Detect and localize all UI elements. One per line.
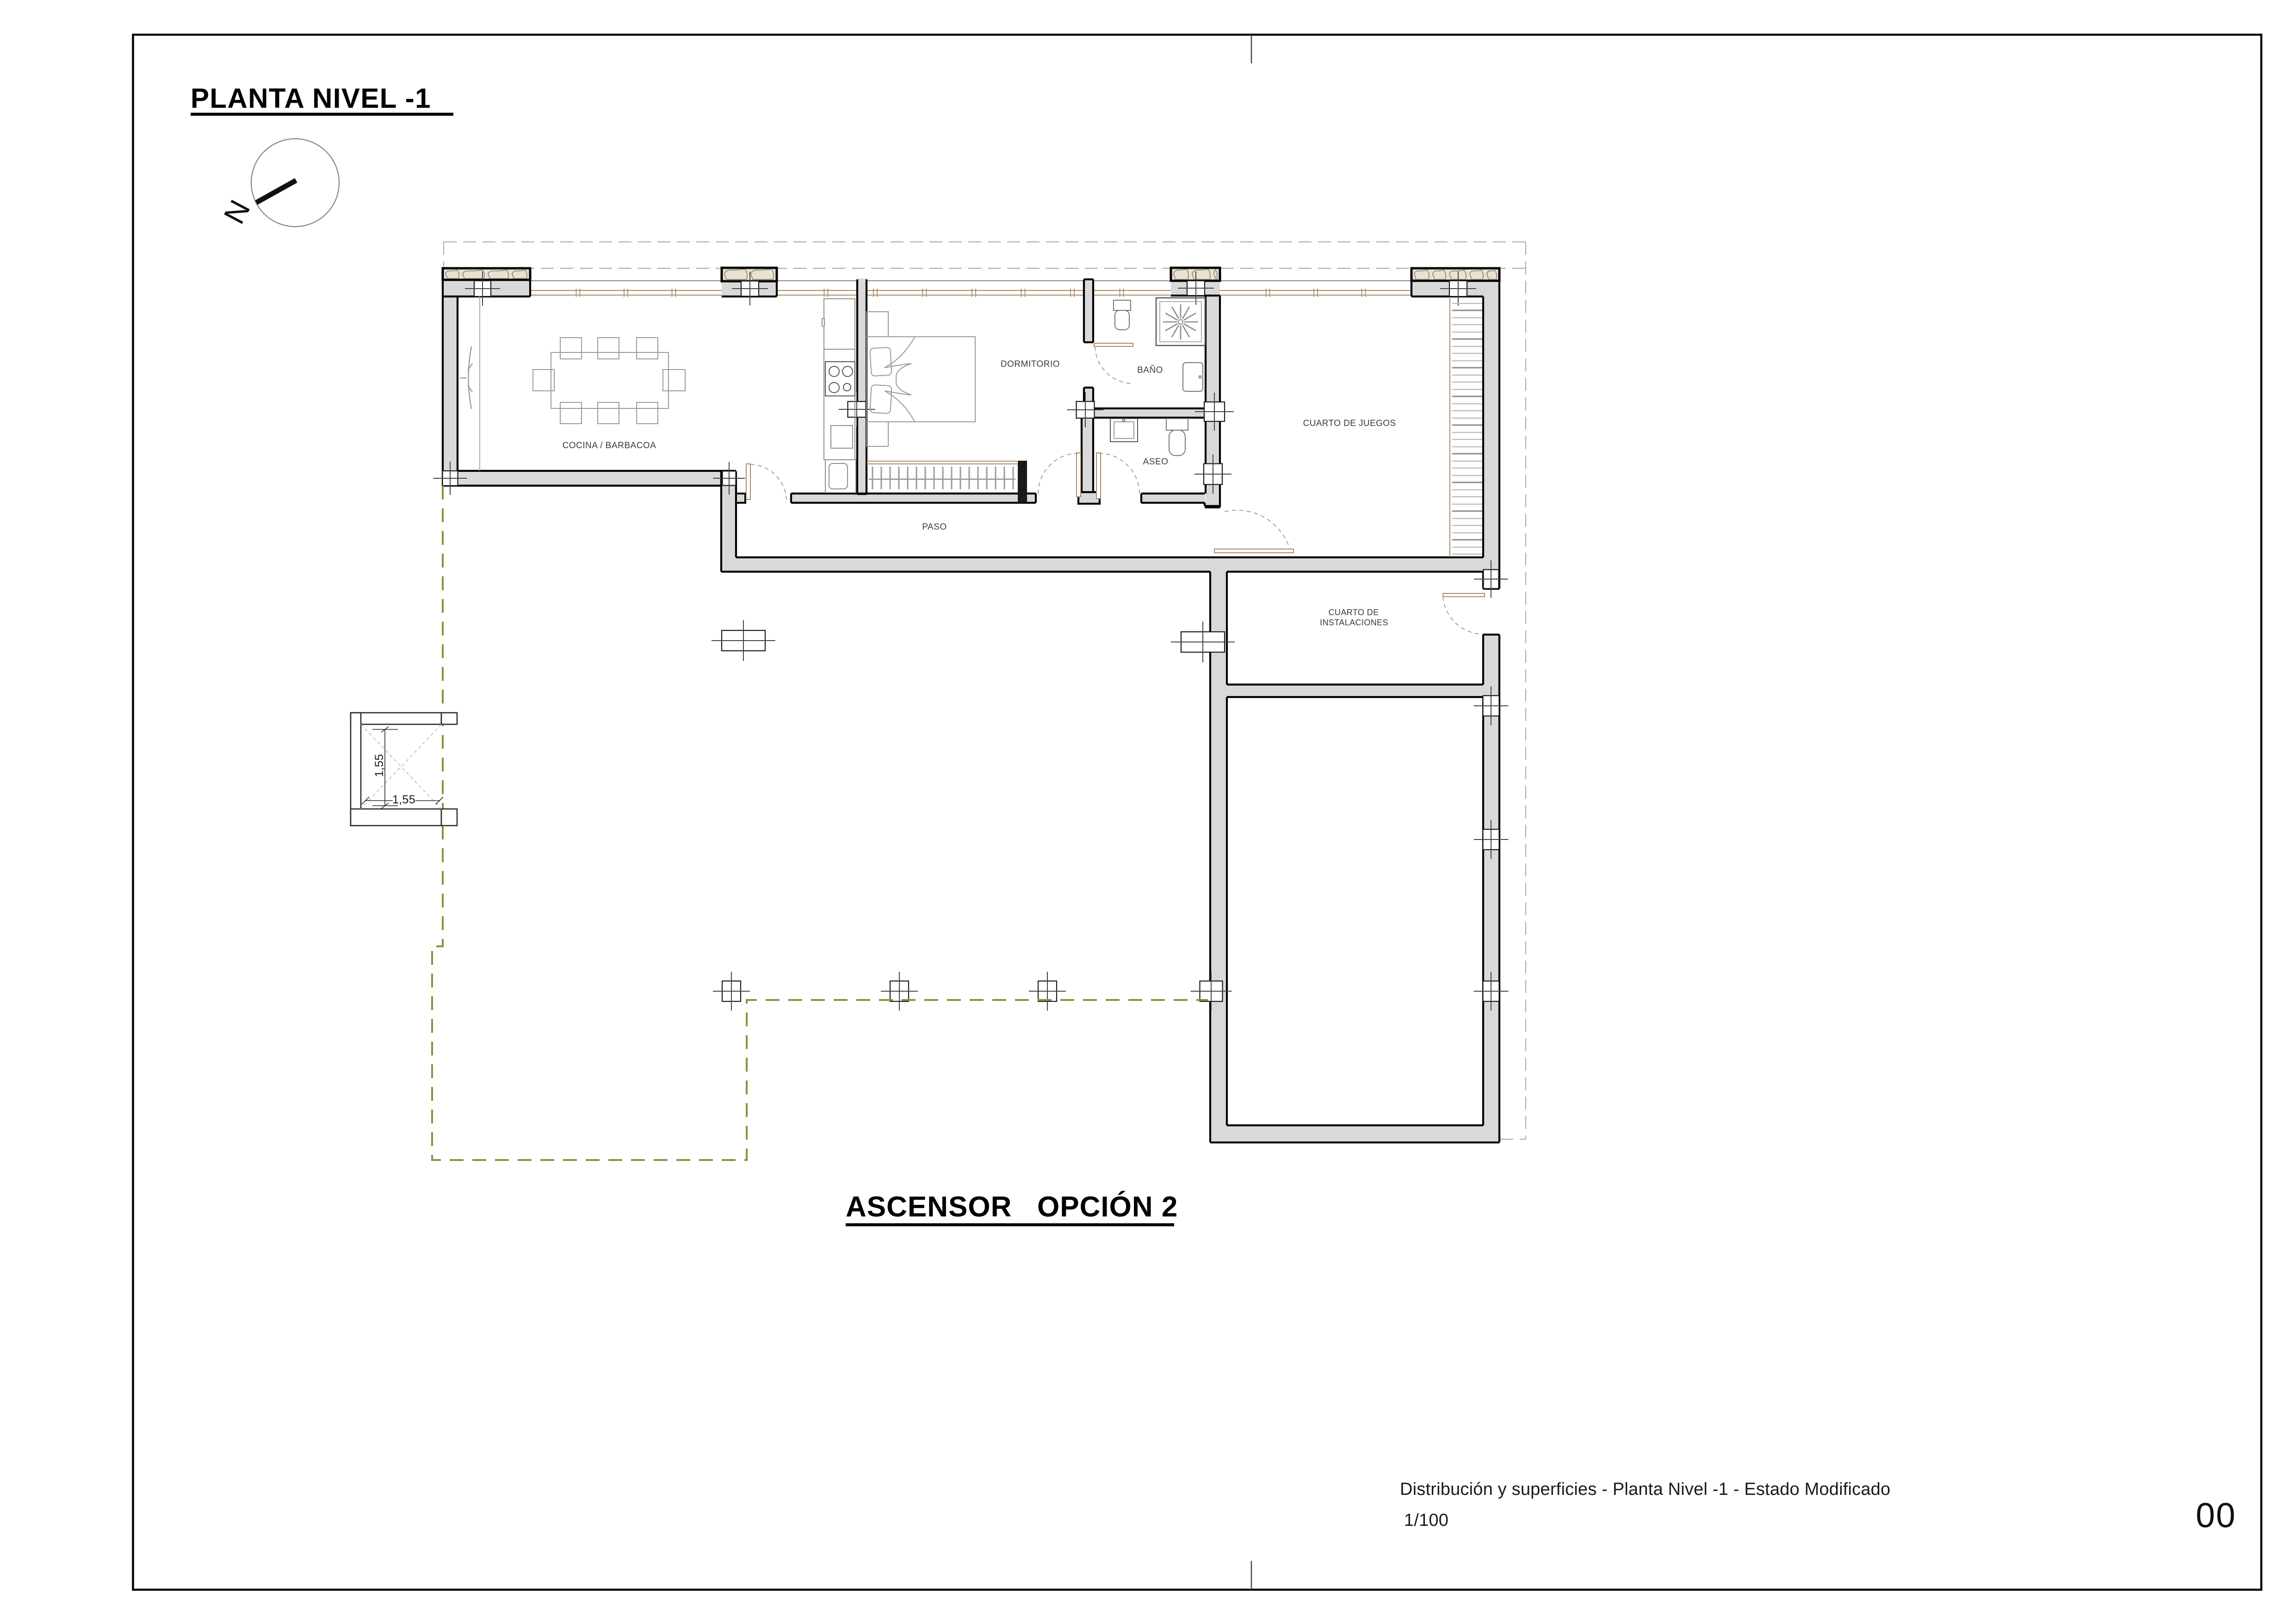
svg-text:1,55: 1,55 <box>392 793 415 806</box>
svg-text:ASEO: ASEO <box>1143 457 1169 467</box>
svg-text:BAÑO: BAÑO <box>1137 365 1163 375</box>
svg-text:00: 00 <box>2196 1496 2236 1535</box>
svg-text:CUARTO DE: CUARTO DE <box>1329 608 1379 617</box>
svg-text:PLANTA NIVEL -1: PLANTA NIVEL -1 <box>191 83 431 114</box>
svg-text:PASO: PASO <box>922 522 947 532</box>
svg-text:1,55: 1,55 <box>373 754 386 777</box>
svg-text:N: N <box>217 195 256 229</box>
svg-text:COCINA / BARBACOA: COCINA / BARBACOA <box>563 441 656 450</box>
svg-text:DORMITORIO: DORMITORIO <box>1001 359 1060 369</box>
svg-text:ASCENSOR OPCIÓN 2: ASCENSOR OPCIÓN 2 <box>846 1191 1178 1223</box>
svg-text:1/100: 1/100 <box>1404 1511 1448 1530</box>
svg-text:Distribución y superficies - P: Distribución y superficies - Planta Nive… <box>1400 1480 1890 1499</box>
svg-text:CUARTO DE JUEGOS: CUARTO DE JUEGOS <box>1303 419 1396 428</box>
svg-text:INSTALACIONES: INSTALACIONES <box>1320 618 1388 627</box>
